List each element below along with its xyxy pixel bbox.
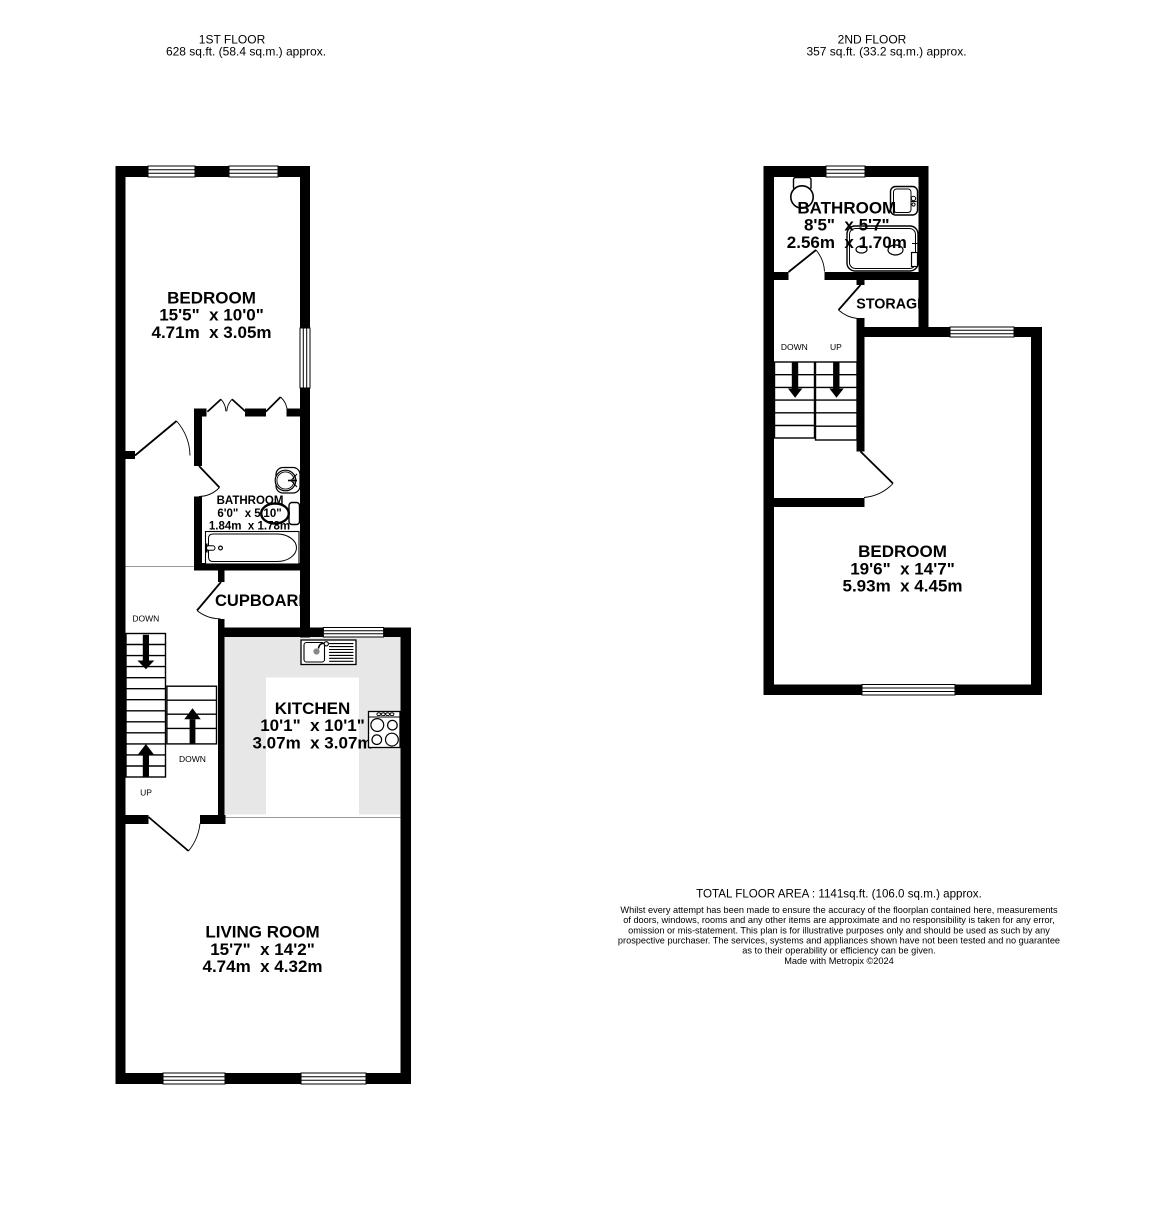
svg-text:4.74m x 4.32m: 4.74m x 4.32m <box>202 957 322 976</box>
svg-text:as to their operability or eff: as to their operability or efficiency ca… <box>742 946 935 956</box>
svg-text:BEDROOM: BEDROOM <box>167 288 256 307</box>
svg-text:5.93m x 4.45m: 5.93m x 4.45m <box>842 577 962 596</box>
svg-text:2.56m x 1.70m: 2.56m x 1.70m <box>787 233 907 252</box>
svg-text:CUPBOARD: CUPBOARD <box>215 592 310 610</box>
svg-text:KITCHEN: KITCHEN <box>275 699 351 718</box>
svg-text:STORAGE: STORAGE <box>856 297 926 313</box>
svg-text:10'1" x 10'1": 10'1" x 10'1" <box>260 716 365 735</box>
svg-text:prospective purchaser. The ser: prospective purchaser. The services, sys… <box>618 936 1060 946</box>
svg-text:6'0" x 5'10": 6'0" x 5'10" <box>217 508 281 520</box>
svg-text:1.84m x 1.78m: 1.84m x 1.78m <box>209 520 290 532</box>
svg-text:BEDROOM: BEDROOM <box>858 542 947 561</box>
svg-text:omission or mis-statement. Thi: omission or mis-statement. This plan is … <box>628 925 1050 935</box>
svg-text:LIVING ROOM: LIVING ROOM <box>205 923 319 942</box>
svg-text:Made with Metropix ©2024: Made with Metropix ©2024 <box>784 956 893 966</box>
svg-text:3.07m x 3.07m: 3.07m x 3.07m <box>252 734 372 753</box>
svg-text:15'7" x 14'2": 15'7" x 14'2" <box>210 940 315 959</box>
svg-text:DOWN: DOWN <box>132 614 159 624</box>
svg-text:8'5" x 5'7": 8'5" x 5'7" <box>804 216 890 235</box>
svg-text:4.71m x 3.05m: 4.71m x 3.05m <box>151 323 271 342</box>
svg-text:UP: UP <box>830 342 842 352</box>
svg-text:357 sq.ft. (33.2 sq.m.) approx: 357 sq.ft. (33.2 sq.m.) approx. <box>806 45 966 59</box>
svg-text:Whilst every attempt has been: Whilst every attempt has been made to en… <box>620 905 1058 915</box>
svg-text:of doors, windows, rooms and a: of doors, windows, rooms and any other i… <box>623 915 1055 925</box>
svg-text:BATHROOM: BATHROOM <box>797 198 896 217</box>
svg-text:BATHROOM: BATHROOM <box>217 495 284 507</box>
svg-text:15'5" x 10'0": 15'5" x 10'0" <box>159 306 264 325</box>
svg-text:DOWN: DOWN <box>781 342 808 352</box>
svg-text:TOTAL FLOOR AREA : 1141sq.ft.: TOTAL FLOOR AREA : 1141sq.ft. (106.0 sq.… <box>696 888 982 901</box>
svg-text:19'6" x 14'7": 19'6" x 14'7" <box>850 559 955 578</box>
svg-text:628 sq.ft. (58.4 sq.m.) approx: 628 sq.ft. (58.4 sq.m.) approx. <box>166 45 326 59</box>
svg-text:DOWN: DOWN <box>179 754 206 764</box>
svg-text:UP: UP <box>140 788 152 798</box>
